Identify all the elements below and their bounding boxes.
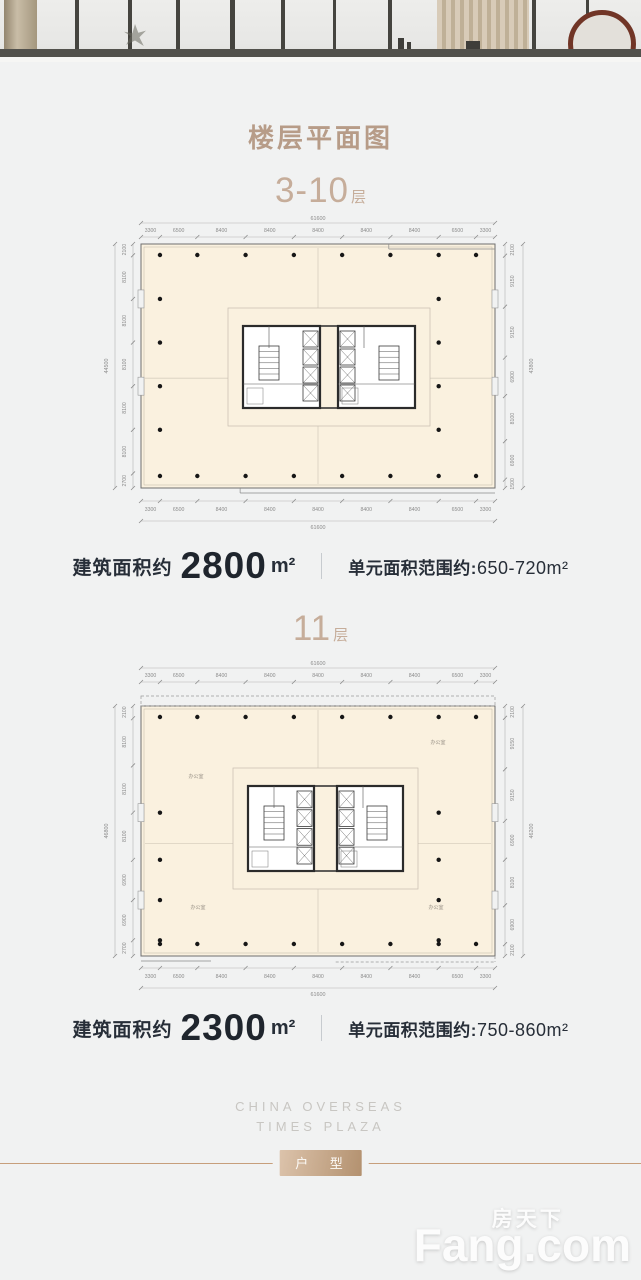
svg-text:8100: 8100 (122, 830, 128, 842)
svg-text:8400: 8400 (312, 507, 324, 513)
svg-text:6500: 6500 (173, 507, 185, 513)
svg-text:8400: 8400 (264, 673, 276, 679)
svg-text:61600: 61600 (311, 661, 326, 667)
svg-text:6500: 6500 (452, 974, 464, 980)
page-title: 楼层平面图 (0, 118, 641, 155)
svg-text:6900: 6900 (122, 914, 128, 926)
svg-text:8100: 8100 (122, 446, 128, 458)
svg-text:2100: 2100 (510, 706, 516, 718)
floor-range-label-2: 11层 (0, 609, 641, 649)
svg-text:8100: 8100 (122, 315, 128, 327)
floor-range-number: 3-10 (275, 171, 349, 210)
svg-text:2100: 2100 (122, 244, 128, 256)
floor-plan-drawing-3-10: 6160033006500840084008400840084006500330… (93, 213, 548, 533)
svg-text:6900: 6900 (122, 874, 128, 886)
vertical-divider (321, 553, 322, 579)
svg-text:8400: 8400 (312, 974, 324, 980)
svg-text:3300: 3300 (145, 228, 157, 234)
watermark-en: Fang.com (414, 1222, 631, 1268)
brand-name: CHINA OVERSEAS TIMES PLAZA (0, 1097, 641, 1137)
svg-text:6900: 6900 (510, 371, 516, 383)
area-unit: m² (271, 1017, 295, 1040)
svg-text:8100: 8100 (122, 736, 128, 748)
svg-text:8400: 8400 (312, 673, 324, 679)
window-ledge (0, 49, 641, 57)
floor-suffix: 层 (333, 627, 348, 644)
unit-range-label: 单元面积范围约: (348, 559, 477, 578)
badge-wrap: 户 型 (272, 1150, 369, 1176)
svg-text:办公室: 办公室 (188, 773, 203, 780)
svg-text:8100: 8100 (510, 413, 516, 425)
unit-range-value: 650-720m² (477, 558, 569, 578)
unit-range-label: 单元面积范围约: (348, 1021, 477, 1040)
svg-text:61600: 61600 (311, 216, 326, 222)
svg-text:3300: 3300 (480, 228, 492, 234)
floor-range-label-1: 3-10层 (0, 171, 641, 211)
svg-text:3300: 3300 (480, 673, 492, 679)
svg-text:9150: 9150 (510, 326, 516, 338)
svg-text:8400: 8400 (360, 507, 372, 513)
svg-text:8400: 8400 (360, 974, 372, 980)
section-rule: 户 型 (0, 1151, 641, 1175)
svg-text:9150: 9150 (510, 738, 516, 750)
svg-text:6500: 6500 (452, 673, 464, 679)
huxing-badge: 户 型 (279, 1150, 362, 1176)
curtain-panel (437, 0, 529, 56)
svg-text:6500: 6500 (173, 673, 185, 679)
area-label: 建筑面积约 (73, 1015, 173, 1042)
window-mullion (128, 0, 132, 53)
svg-text:8400: 8400 (216, 507, 228, 513)
svg-text:8100: 8100 (122, 271, 128, 283)
window-mullion (230, 0, 235, 53)
area-info-2: 建筑面积约 2300 m² 单元面积范围约:750-860m² (0, 1007, 641, 1049)
fang-watermark: 房天下 Fang.com (414, 1209, 631, 1268)
svg-text:3300: 3300 (145, 673, 157, 679)
svg-text:办公室: 办公室 (190, 904, 205, 911)
area-unit: m² (271, 555, 295, 578)
svg-text:2100: 2100 (510, 244, 516, 256)
brand-line-1: CHINA OVERSEAS (0, 1097, 641, 1117)
area-info-1: 建筑面积约 2800 m² 单元面积范围约:650-720m² (0, 545, 641, 587)
svg-text:46200: 46200 (529, 824, 535, 839)
window-mullion (75, 0, 79, 53)
svg-text:6900: 6900 (510, 455, 516, 467)
svg-text:8400: 8400 (264, 507, 276, 513)
svg-text:办公室: 办公室 (430, 739, 445, 746)
svg-text:9150: 9150 (510, 789, 516, 801)
svg-text:8400: 8400 (409, 507, 421, 513)
svg-text:8100: 8100 (122, 359, 128, 371)
unit-range: 单元面积范围约:750-860m² (348, 1016, 568, 1041)
svg-text:61600: 61600 (311, 525, 326, 531)
window-mullion (388, 0, 392, 53)
unit-range: 单元面积范围约:650-720m² (348, 554, 568, 579)
wood-column (4, 0, 37, 56)
window-mullion (176, 0, 180, 53)
svg-text:8400: 8400 (264, 228, 276, 234)
window-mullion (281, 0, 285, 53)
window-mullion (333, 0, 336, 53)
svg-text:6500: 6500 (452, 228, 464, 234)
brand-line-2: TIMES PLAZA (0, 1117, 641, 1137)
window-mullion (532, 0, 536, 53)
svg-text:6900: 6900 (510, 919, 516, 931)
svg-text:8400: 8400 (312, 228, 324, 234)
svg-text:8400: 8400 (216, 228, 228, 234)
svg-text:8100: 8100 (510, 877, 516, 889)
svg-text:61600: 61600 (311, 992, 326, 998)
vertical-divider (321, 1015, 322, 1041)
svg-text:8400: 8400 (409, 673, 421, 679)
page: 楼层平面图 3-10层 6160033006500840084008400840… (0, 0, 641, 1280)
floor-range-number: 11 (293, 609, 331, 648)
svg-text:43800: 43800 (529, 359, 535, 374)
floor-strip (0, 57, 641, 62)
svg-text:6900: 6900 (510, 834, 516, 846)
svg-text:6500: 6500 (173, 228, 185, 234)
floor-plan-drawing-11: 6160033006500840084008400840084006500330… (93, 651, 548, 1001)
svg-text:46800: 46800 (104, 824, 110, 839)
svg-text:8400: 8400 (409, 228, 421, 234)
svg-text:8100: 8100 (122, 783, 128, 795)
svg-text:9150: 9150 (510, 275, 516, 287)
floor-suffix: 层 (351, 189, 366, 206)
svg-text:3300: 3300 (480, 974, 492, 980)
svg-text:3300: 3300 (145, 507, 157, 513)
unit-range-value: 750-860m² (477, 1020, 569, 1040)
svg-text:办公室: 办公室 (428, 904, 443, 911)
svg-text:8400: 8400 (264, 974, 276, 980)
svg-text:8400: 8400 (216, 974, 228, 980)
svg-text:2100: 2100 (510, 944, 516, 956)
svg-text:8400: 8400 (360, 228, 372, 234)
area-value: 2300 (181, 1007, 267, 1049)
svg-text:2700: 2700 (122, 942, 128, 954)
svg-text:3300: 3300 (480, 507, 492, 513)
svg-text:8400: 8400 (216, 673, 228, 679)
svg-text:2700: 2700 (122, 475, 128, 487)
header-photo (0, 0, 641, 62)
svg-text:8400: 8400 (360, 673, 372, 679)
svg-text:1500: 1500 (510, 478, 516, 490)
svg-text:8100: 8100 (122, 402, 128, 414)
area-label: 建筑面积约 (73, 553, 173, 580)
svg-text:44500: 44500 (104, 359, 110, 374)
svg-text:6500: 6500 (173, 974, 185, 980)
svg-text:6500: 6500 (452, 507, 464, 513)
area-value: 2800 (181, 545, 267, 587)
svg-text:2100: 2100 (122, 706, 128, 718)
svg-text:8400: 8400 (409, 974, 421, 980)
svg-text:3300: 3300 (145, 974, 157, 980)
